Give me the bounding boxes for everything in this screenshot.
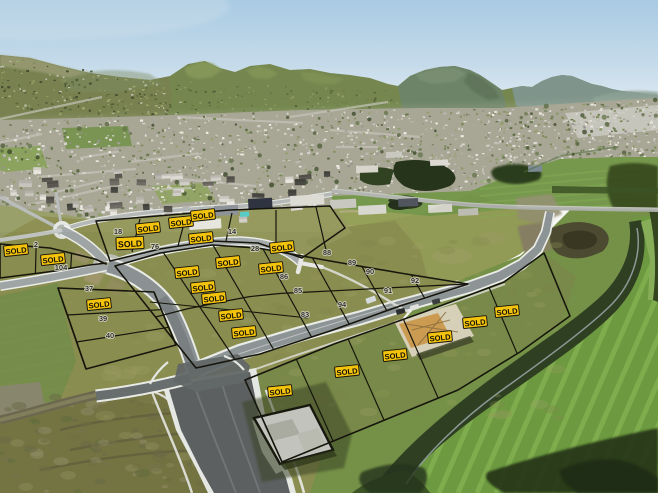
svg-text:94: 94 [338,300,347,309]
svg-text:90: 90 [366,267,374,276]
svg-text:28: 28 [251,244,259,253]
svg-text:37: 37 [85,284,93,293]
svg-text:SOLD: SOLD [118,238,143,249]
svg-text:18: 18 [114,227,122,236]
svg-text:85: 85 [294,286,302,295]
svg-text:14: 14 [228,227,237,236]
svg-text:40: 40 [106,331,114,340]
svg-text:91: 91 [384,286,392,295]
svg-text:76: 76 [151,242,159,251]
svg-text:39: 39 [99,314,107,323]
svg-text:86: 86 [280,272,288,281]
svg-text:88: 88 [323,248,331,257]
svg-text:2: 2 [34,240,38,249]
svg-text:89: 89 [348,258,356,267]
svg-text:92: 92 [411,276,419,285]
svg-text:83: 83 [301,310,309,319]
